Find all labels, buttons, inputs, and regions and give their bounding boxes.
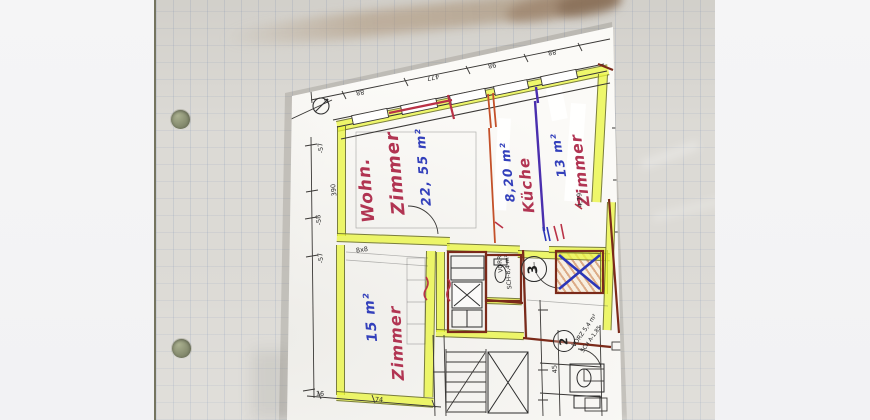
- dim-top-inner-1: 88: [355, 88, 364, 96]
- stair-x-cross: [488, 352, 528, 413]
- dim-left-4: -57: [317, 252, 325, 263]
- dim-misc-74: 74: [375, 396, 384, 403]
- dim-left-3: -58: [315, 214, 323, 225]
- dim-top-inner-3: 98: [487, 61, 496, 69]
- room-area-zimmer15: 15 m²: [362, 291, 380, 342]
- north-symbol-icon: [313, 98, 329, 114]
- dim-top-inner-2: 477: [426, 73, 439, 81]
- photo-floorplan-on-grid-paper: Wohn. Zimmer 22, 55 m² 8,20 m² Küche 13 …: [0, 0, 870, 420]
- background-left-band: [0, 0, 156, 420]
- orange-pen-lines: [488, 93, 496, 243]
- dim-misc-8x8: 8x8: [356, 246, 369, 254]
- punch-hole-top: [171, 110, 190, 129]
- background-right-band: [715, 0, 870, 420]
- dim-misc-479: 4,79: [576, 193, 584, 208]
- dim-misc-16: 16: [316, 391, 325, 398]
- shadow-left-of-paper: [252, 350, 290, 420]
- circled-number-3: 3: [521, 256, 547, 282]
- dim-left-2: 390: [330, 183, 338, 196]
- dim-top-inner-4: 88: [547, 48, 556, 56]
- punch-hole-bottom: [172, 339, 191, 358]
- dim-left-1: -57: [317, 142, 325, 153]
- dim-misc-45: 45: [551, 365, 558, 374]
- blue-x-mark: [543, 227, 600, 289]
- room-label-zimmer15: Zimmer: [387, 305, 407, 381]
